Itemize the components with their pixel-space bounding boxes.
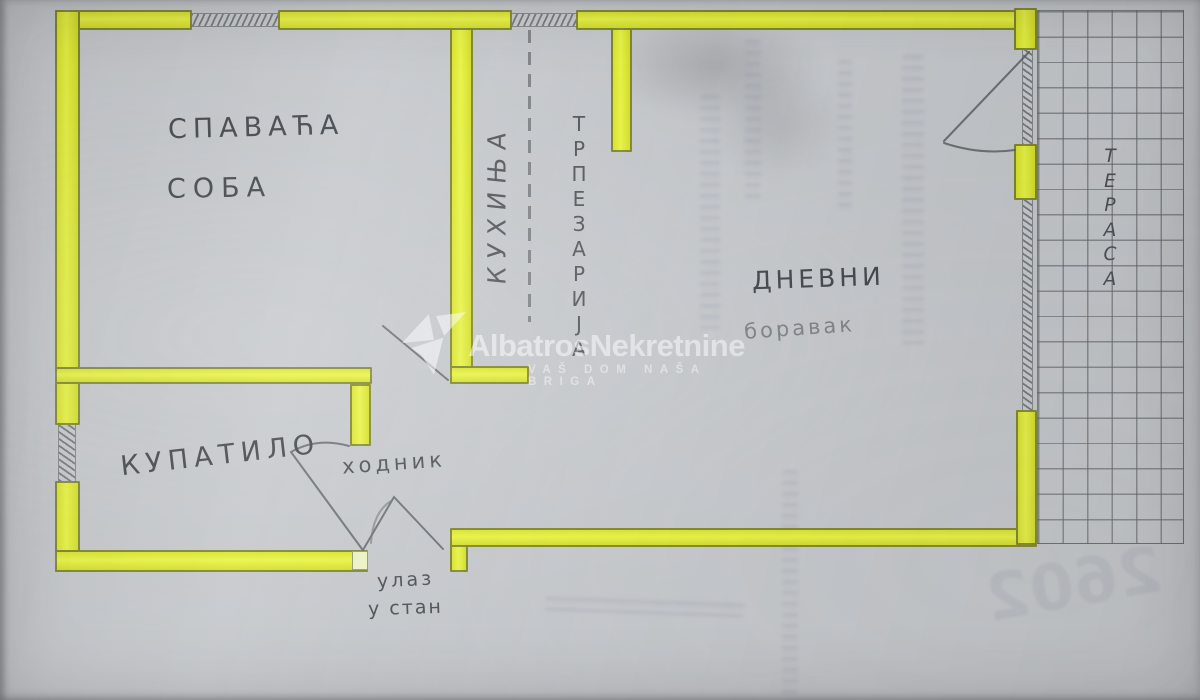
photo-stain: [700, 58, 850, 188]
wall-left-upper: [55, 10, 80, 425]
kitchen-dining-dashed-divider: [528, 30, 531, 322]
terrace-door-leaf: [944, 52, 1029, 141]
wall-kitchen: [450, 28, 473, 384]
wall-dining-living: [611, 28, 632, 152]
ink-bleedthrough: [700, 95, 720, 330]
ink-bleedthrough: [782, 470, 798, 695]
wall-bottom-living: [450, 528, 1037, 547]
room-label-entrance-line2: у стан: [368, 596, 444, 621]
room-label-bedroom-line1: СПАВАЋА: [168, 110, 345, 146]
room-label-terrace: Т Е Р А С А: [1096, 146, 1124, 293]
room-label-kitchen: КУХИЊА: [483, 108, 512, 301]
wall-bottom-living-leg: [450, 545, 468, 572]
entrance-door-jamb: [352, 551, 368, 570]
wall-terrace-block-low: [1016, 410, 1037, 545]
room-label-bathroom: КУПАТИЛО: [119, 429, 322, 483]
room-label-entrance-line1: улаз: [376, 568, 434, 593]
floorplan-photo: 2602 СПАВАЋА СОБА КУХИЊА Т: [0, 0, 1200, 700]
wall-bottom-bathroom: [55, 550, 368, 572]
watermark-tagline: VAŠ DOM NAŠA BRIGA: [528, 364, 745, 388]
wall-top-mid: [278, 10, 512, 30]
ink-bleedthrough: [545, 597, 745, 618]
window-top-1: [185, 13, 280, 27]
wall-terrace-block-mid: [1014, 144, 1037, 200]
wall-kitchen-bottom: [450, 366, 529, 384]
watermark-brand: AlbatrosNekretnine: [468, 330, 745, 361]
ink-bleedthrough: [902, 55, 924, 345]
room-label-living-line1: ДНЕВНИ: [752, 262, 886, 296]
window-top-2: [510, 13, 578, 27]
terrace-door-arc: [944, 143, 1015, 151]
bedroom-door-leaf: [383, 326, 448, 380]
entrance-door-lines: [363, 497, 443, 550]
wall-bathroom-right: [350, 384, 371, 446]
entrance-door-arc: [371, 501, 391, 543]
room-label-bedroom-line2: СОБА: [167, 172, 273, 205]
window-wall-terrace: [1022, 48, 1033, 412]
wall-bedroom-bathroom: [55, 367, 372, 384]
ink-bleedthrough: [745, 40, 761, 205]
photo-vignette: [0, 0, 1200, 700]
ink-bleedthrough: [838, 60, 852, 210]
bleedthrough-number: 2602: [980, 533, 1168, 637]
photo-lighting-overlay: [0, 0, 1200, 700]
door-swing-lines: [0, 0, 1200, 700]
room-label-hallway: ходник: [341, 447, 446, 478]
room-label-living-line2: боравак: [743, 312, 855, 344]
room-label-dining: Т Р П Е З А Р И Ј А: [564, 112, 594, 362]
window-left-bathroom: [58, 425, 76, 481]
wall-terrace-block-top: [1014, 8, 1037, 50]
wall-top-right: [576, 10, 1020, 30]
